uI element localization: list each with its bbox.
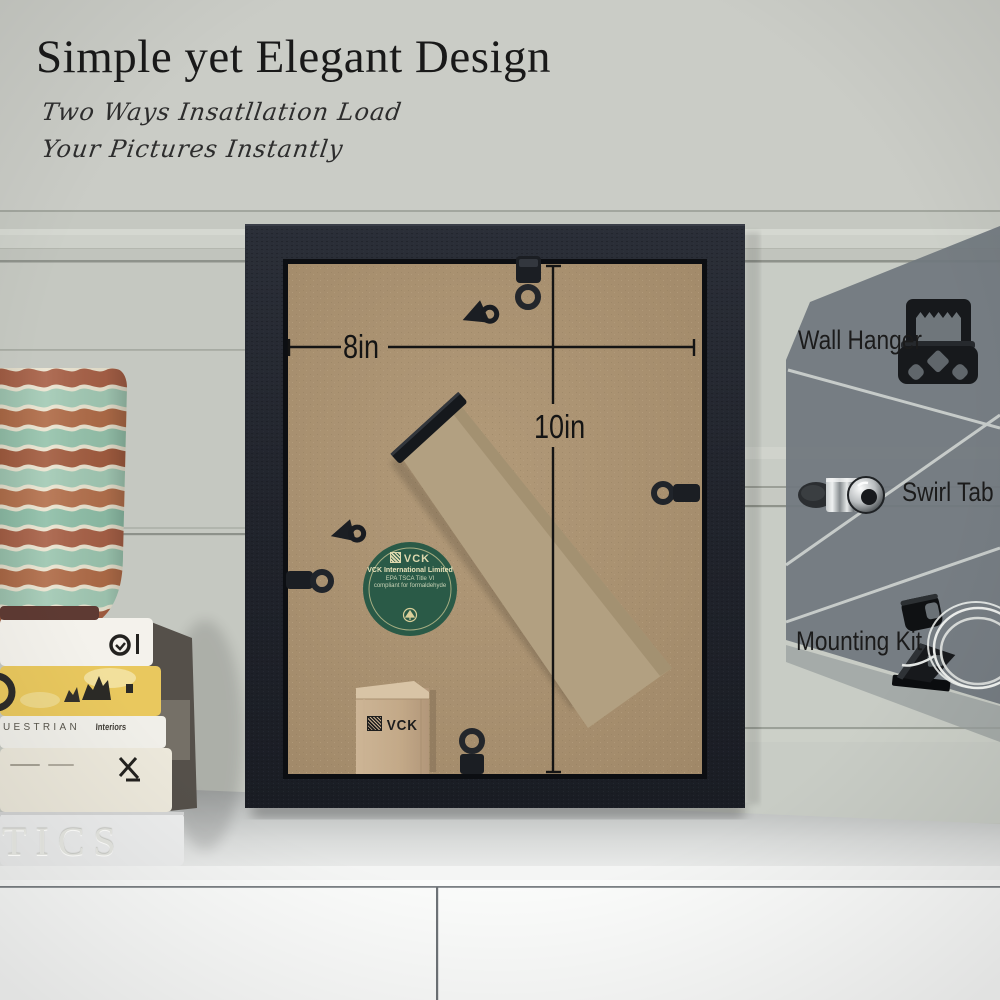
vck-logo-icon [390, 552, 401, 563]
subtitle-line-1: Two Ways Insatllation Load [40, 98, 404, 126]
sticker-epa-line: EPA TSCA Title VI [358, 576, 462, 584]
sticker-company-line: VCK International Limited [358, 567, 462, 576]
sticker-brand: VCK [404, 553, 430, 565]
compliance-sticker-text: VCK VCK International Limited EPA TSCA T… [358, 551, 462, 591]
sticker-compliance-line: compliant for formaldehyde [358, 583, 462, 591]
headline: Simple yet Elegant Design [36, 30, 551, 84]
height-dimension-label: 10in [534, 408, 585, 446]
callout-label-swirl-tab: Swirl Tab [902, 477, 994, 508]
subtitle-line-2: Your Pictures Instantly [40, 135, 345, 163]
book-spine-text-equestrian: UESTRIAN [3, 721, 80, 733]
bag-brand: VCK [386, 717, 417, 734]
vck-logo-icon [367, 716, 382, 731]
callout-label-wall-hanger: Wall Hanger [798, 325, 922, 356]
book-spine-text-embossed: TICS [2, 818, 125, 865]
book-spine-subtext: Interiors [95, 722, 126, 733]
product-marketing-image: Simple yet Elegant Design Two Ways Insat… [0, 0, 1000, 1000]
kraft-bag-logo: VCK [358, 715, 428, 735]
callout-label-mounting-kit: Mounting Kit [796, 626, 922, 657]
width-dimension-label: 8in [343, 328, 379, 366]
